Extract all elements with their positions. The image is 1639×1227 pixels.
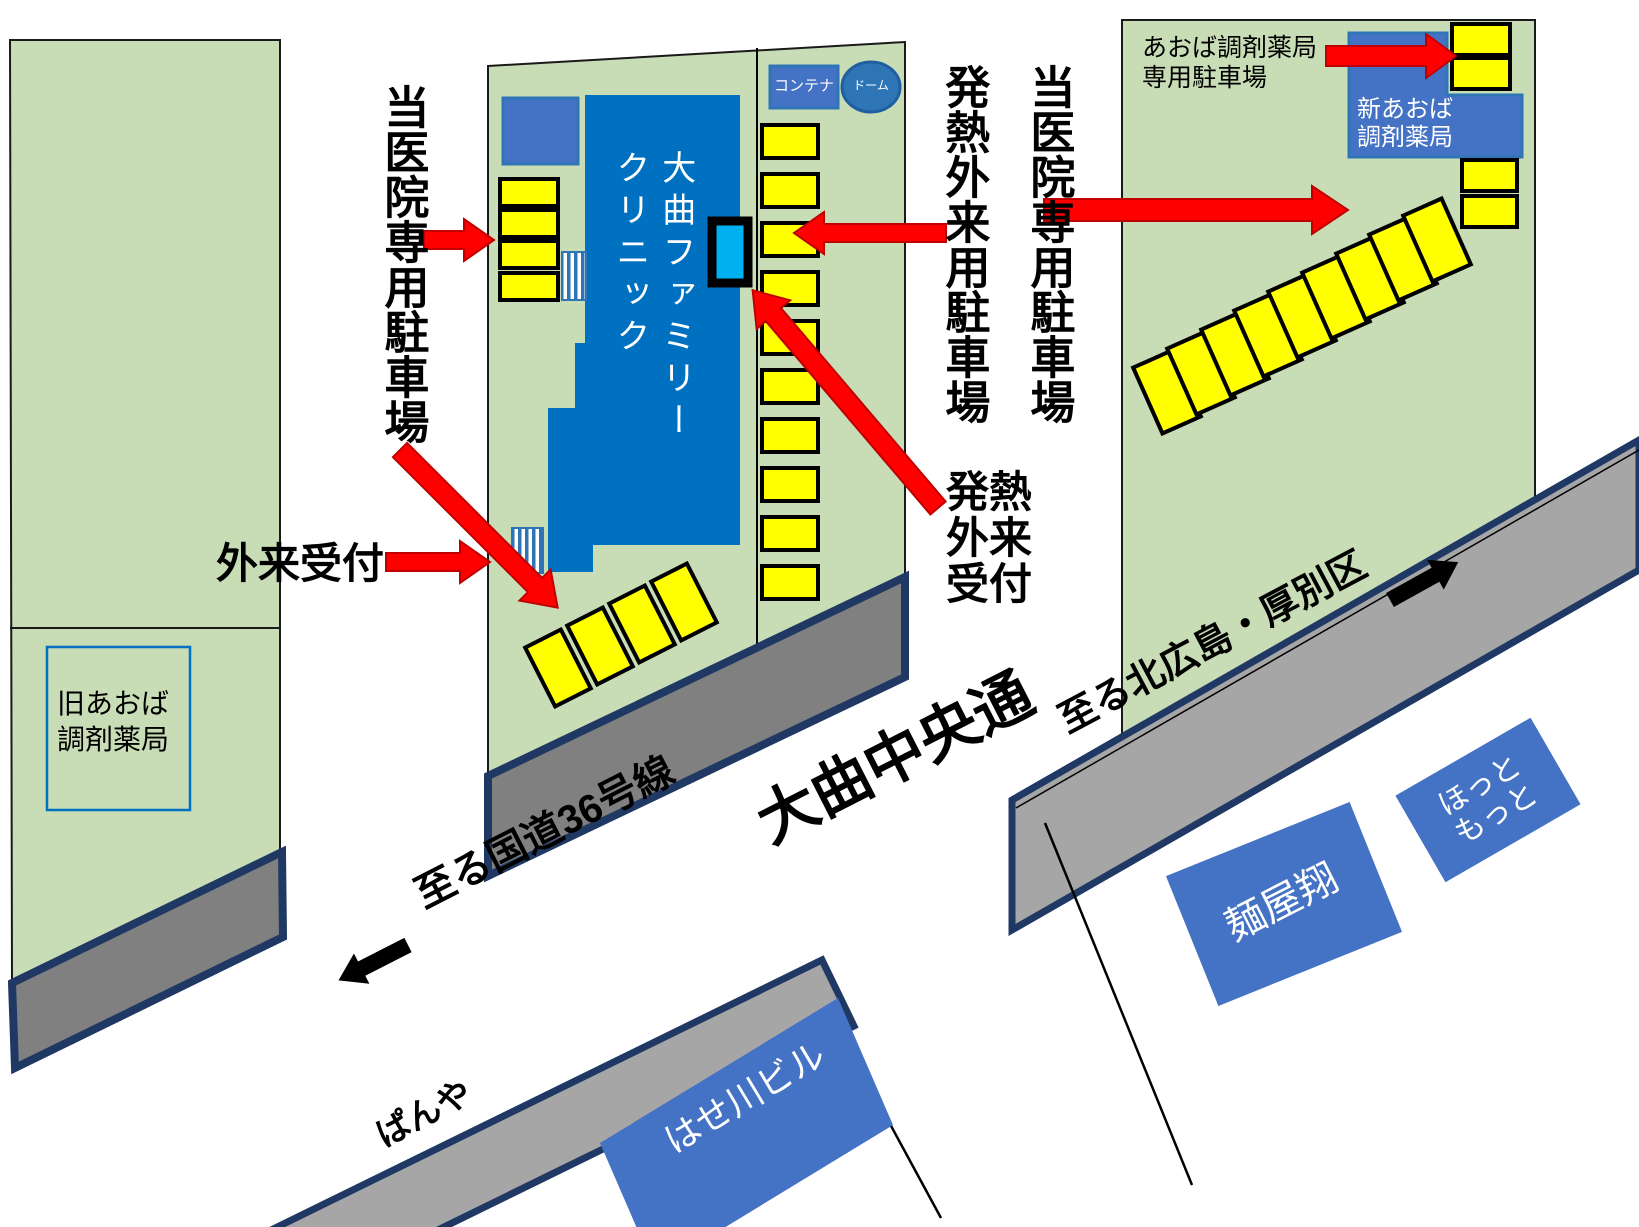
pharmacy-top-stalls [1452,24,1510,89]
arrow-route36-direction [331,930,416,996]
fever-reception-label: 発熱 外来 受付 [946,470,1032,608]
dome-label: ドーム [853,79,889,92]
parking-stall [500,210,558,237]
clinic-name-label: 大曲ファミリー クリニック [606,150,698,444]
parking-stall [1452,24,1510,55]
parking-stall [762,566,818,599]
left-lot [10,40,280,985]
parking-stall [762,370,818,403]
entrance-hatch-upper [562,252,586,300]
map-canvas [0,0,1639,1227]
clinic-parking-right-label: 当医院専用駐車場 [1023,64,1073,424]
clinic-side-row-stalls [500,179,558,300]
old-pharmacy-label: 旧あおば 調剤薬局 [57,686,169,759]
fever-parking-label: 発熱外来用駐車場 [938,64,988,424]
parking-stall [500,179,558,206]
container-label: コンテナ [774,79,834,96]
parking-stall [762,174,818,207]
parking-stall [500,273,558,300]
arrow-clinic-parking-left [424,219,494,261]
parking-stall [762,517,818,550]
parking-stall [500,241,558,268]
parking-stall [762,419,818,452]
clinic-access-map: 当医院専用駐車場 外来受付 発熱外来用駐車場 当医院専用駐車場 発熱 外来 受付… [0,0,1639,1227]
parking-stall [762,468,818,501]
boundary-line-hasegawa [890,1124,941,1218]
parking-stall [762,125,818,158]
clinic-annex-building [503,98,578,164]
pharmacy-parking-label: あおば調剤薬局 専用駐車場 [1142,34,1317,93]
parking-stall [1462,196,1517,227]
new-pharmacy-label: 新あおば 調剤薬局 [1357,96,1453,151]
fever-reception-box [712,221,748,283]
parking-stall [1462,160,1517,191]
clinic-parking-left-label: 当医院専用駐車場 [377,84,427,444]
arrow-outpatient-reception [386,541,490,583]
parking-stall [1452,58,1510,89]
outpatient-reception-label: 外来受付 [216,540,384,587]
